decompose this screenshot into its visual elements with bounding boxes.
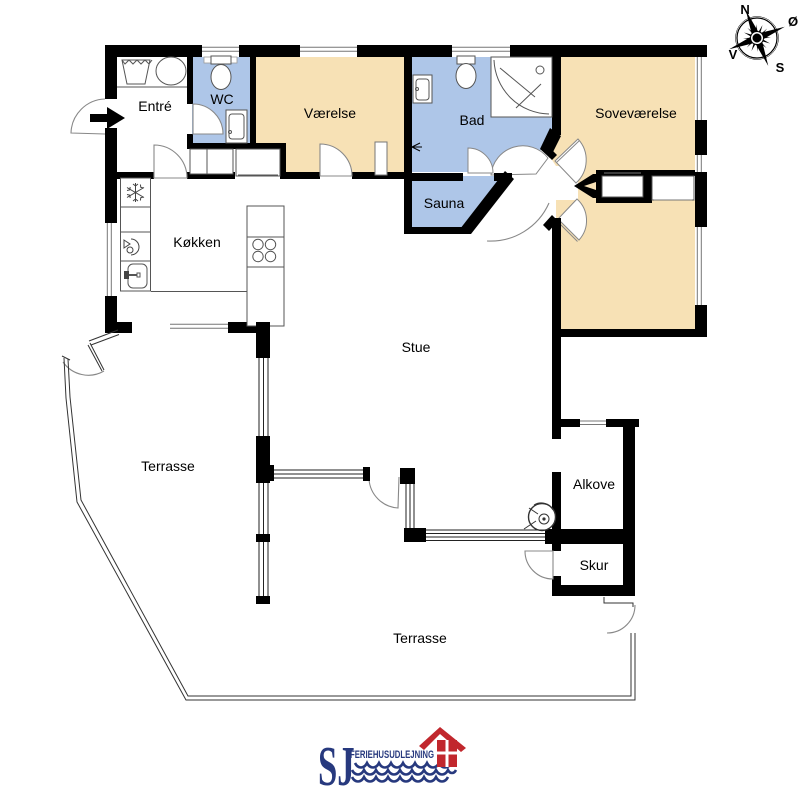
svg-text:N: N (740, 2, 749, 17)
svg-text:Terrasse: Terrasse (141, 458, 195, 474)
svg-text:Skur: Skur (580, 557, 609, 573)
svg-text:Værelse: Værelse (304, 105, 356, 121)
svg-text:Stue: Stue (402, 339, 431, 355)
svg-text:FERIEHUSUDLEJNING: FERIEHUSUDLEJNING (350, 749, 434, 761)
svg-text:WC: WC (210, 91, 233, 107)
svg-text:Sauna: Sauna (424, 195, 465, 211)
svg-text:Soveværelse: Soveværelse (595, 105, 677, 121)
svg-text:Terrasse: Terrasse (393, 630, 447, 646)
svg-text:Køkken: Køkken (173, 234, 220, 250)
svg-text:S: S (776, 60, 785, 75)
svg-text:Entré: Entré (138, 98, 172, 114)
svg-text:V: V (729, 47, 738, 62)
svg-text:Bad: Bad (460, 112, 485, 128)
svg-text:SJ: SJ (318, 736, 355, 799)
svg-text:Ø: Ø (788, 14, 798, 29)
svg-text:Alkove: Alkove (573, 476, 615, 492)
